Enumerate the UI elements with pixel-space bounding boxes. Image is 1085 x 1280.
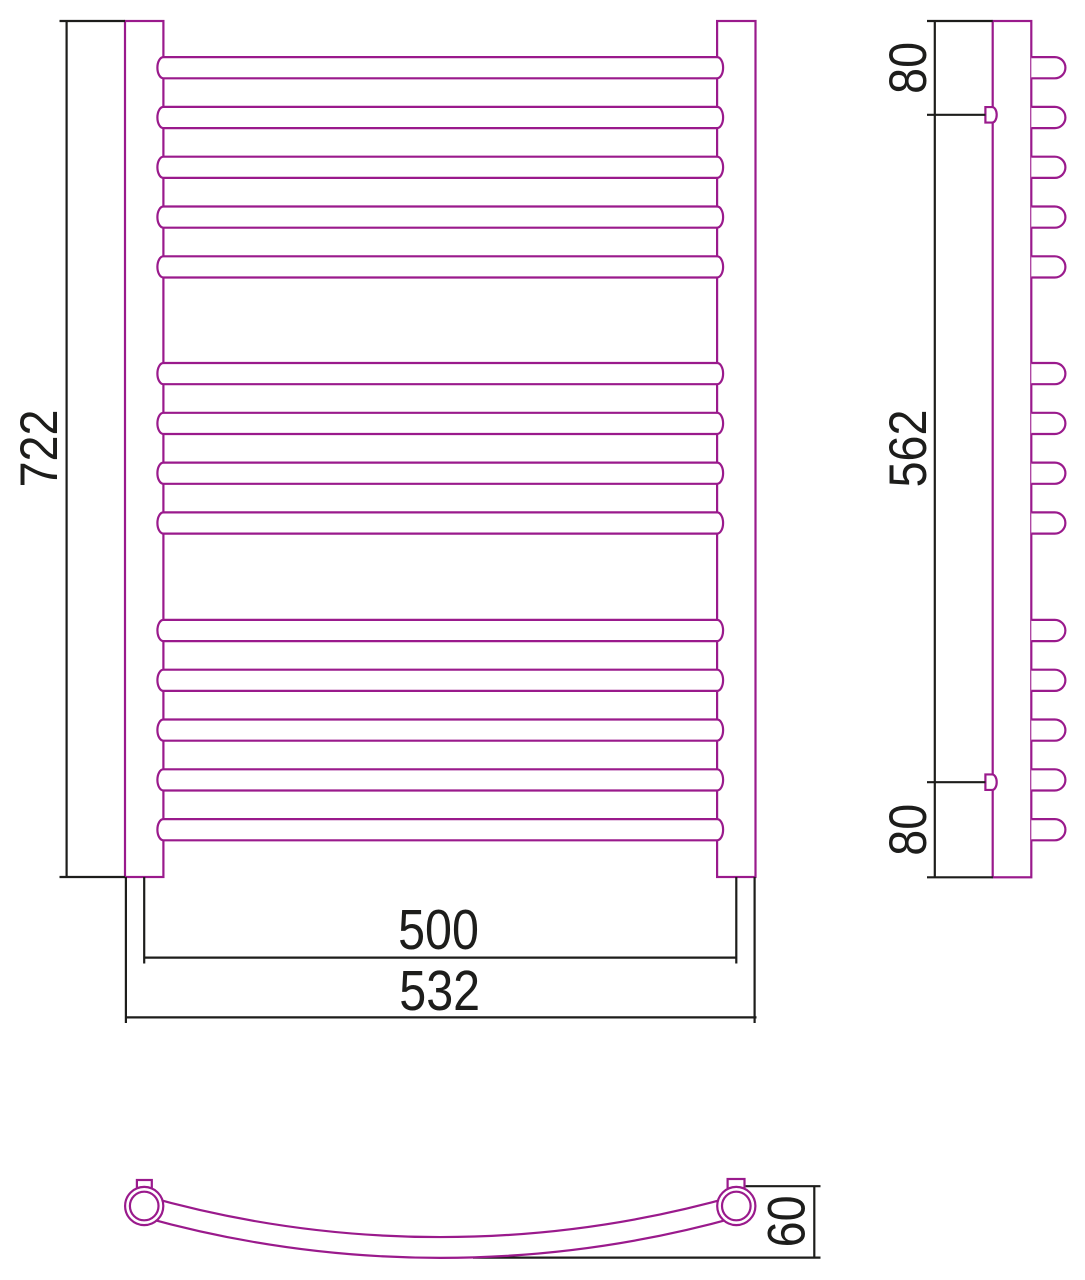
svg-text:722: 722 [9,410,68,488]
svg-text:562: 562 [878,410,937,488]
svg-text:60: 60 [757,1195,816,1247]
svg-text:80: 80 [878,42,937,94]
svg-text:80: 80 [878,804,937,856]
svg-text:532: 532 [399,959,480,1023]
svg-text:500: 500 [398,898,479,962]
